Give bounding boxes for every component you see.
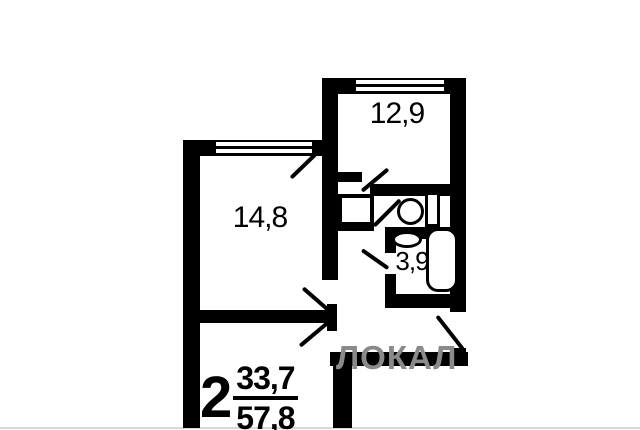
window-mullion-line — [216, 146, 312, 149]
wall-segment-wc-top — [370, 184, 466, 196]
door-swing-line-room3 — [299, 320, 331, 347]
wall-segment-bath-left-lower — [385, 274, 396, 296]
wall-segment-partition — [200, 310, 331, 323]
wall-segment-room1-bottom-stub — [338, 172, 362, 182]
window-icon-room2 — [216, 142, 312, 153]
room-area-label-bathroom: 3,9 — [392, 248, 432, 274]
room-count-label: 2 — [200, 370, 230, 425]
total-area-label: 57,8 — [233, 400, 297, 430]
wall-segment-inner-vertical — [322, 78, 338, 280]
floor-plan: 12,9 14,8 3,9 2 33,7 57,8 ЛОКАЛ — [0, 0, 640, 430]
window-icon-room1 — [356, 80, 444, 91]
toilet-icon — [397, 198, 424, 225]
toilet-tank-icon — [425, 192, 440, 227]
apartment-stamp: 2 33,7 57,8 — [200, 362, 298, 430]
built-in-closet-icon — [338, 194, 374, 231]
wall-segment-left-outer — [183, 140, 200, 428]
room-area-label-2: 14,8 — [214, 203, 306, 233]
wall-segment-bath-bottom — [385, 294, 466, 308]
window-mullion-line — [356, 84, 444, 87]
watermark-text: ЛОКАЛ — [336, 341, 457, 374]
room-area-label-1: 12,9 — [352, 99, 442, 129]
living-area-label: 33,7 — [233, 362, 297, 400]
page-bottom-rule — [0, 427, 640, 429]
area-fraction: 33,7 57,8 — [233, 362, 297, 430]
